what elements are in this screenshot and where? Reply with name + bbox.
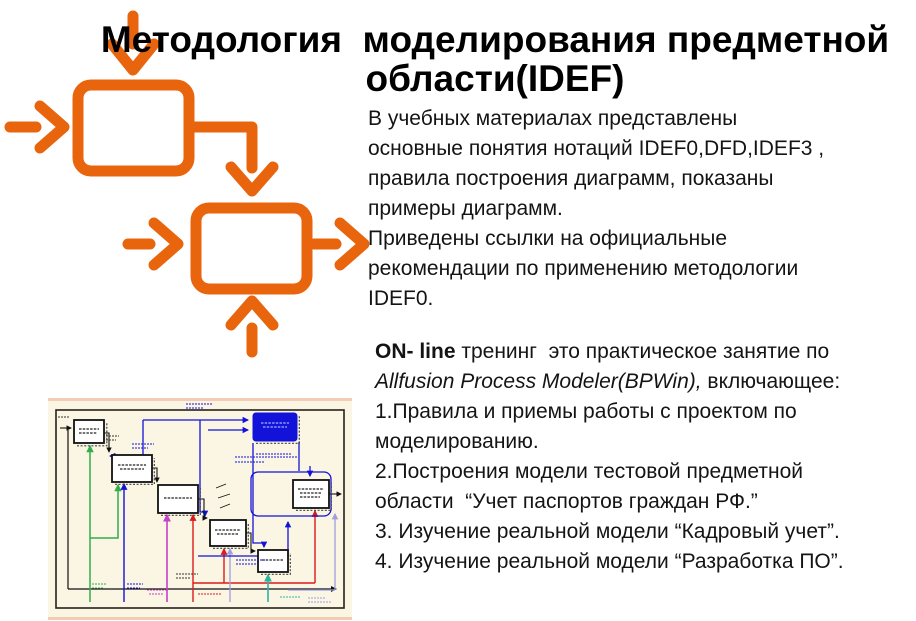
thumbnail-top-edge [48,398,352,401]
bpwin-process-model-screenshot-icon [48,398,352,620]
activity-box-2 [196,208,307,289]
training-lead-rest: тренинг это практическое занятие по [456,340,830,363]
arrow-up-head-icon [231,301,273,325]
arrow-right-head-icon [340,223,364,265]
slide-title: Методология моделирования предметной обл… [100,20,890,98]
training-text: ON- line тренинг это практическое заняти… [375,337,916,577]
training-tool-italic: Allfusion Process Modeler(BPWin), [375,370,702,393]
training-tail: включающее: 1.Правила и приемы работы с … [375,370,844,573]
connector-line [194,127,252,168]
arrow-right-head-icon [40,106,64,148]
arrow-right-head-icon [154,223,178,265]
thumbnail-bottom-edge [48,617,352,620]
intro-text: В учебных материалах представлены основн… [368,104,916,314]
slide: Методология моделирования предметной обл… [0,0,916,621]
training-lead-bold: ON- line [375,340,456,363]
